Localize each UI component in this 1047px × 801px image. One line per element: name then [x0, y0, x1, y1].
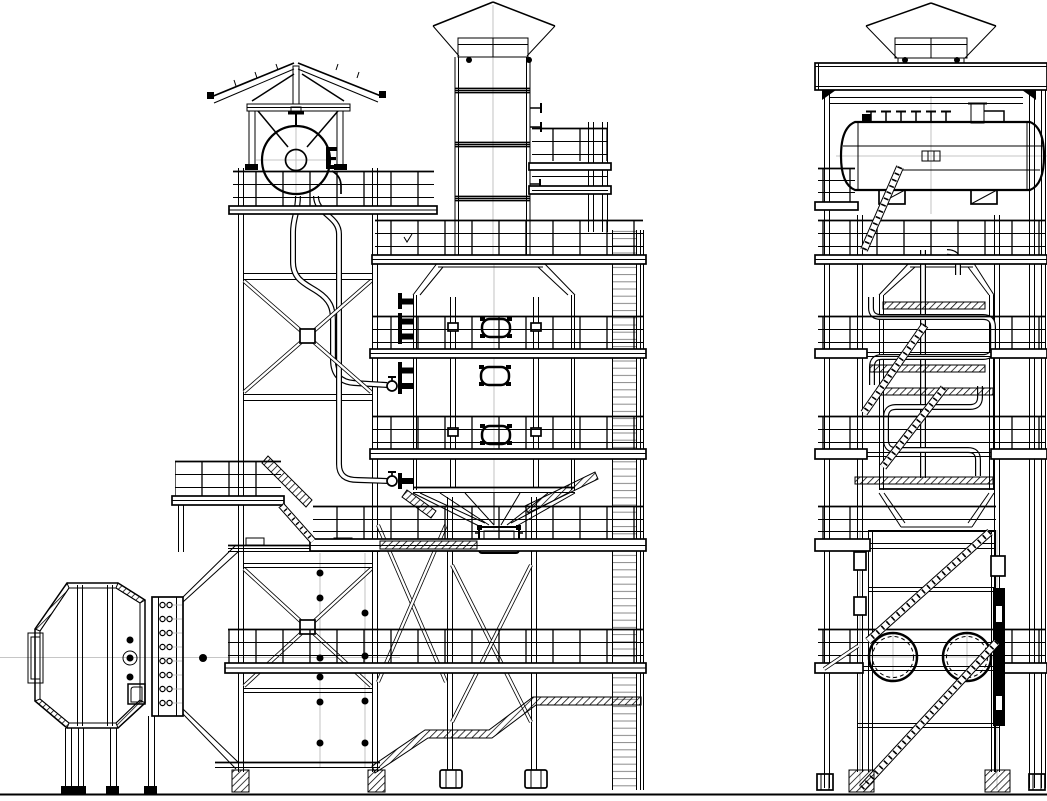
roof-posts — [830, 98, 1023, 104]
front-elevation — [28, 2, 646, 794]
base-plate — [368, 770, 385, 792]
stack-flange-joint — [455, 197, 530, 201]
side-band-3 — [815, 416, 1047, 459]
side-band-4 — [815, 506, 996, 551]
stack-flange-joint — [455, 89, 530, 93]
stack-platform — [529, 122, 611, 232]
platform-band-5 — [225, 629, 646, 673]
side-band-2 — [815, 316, 1047, 358]
valve-nozzle — [387, 377, 413, 394]
side-band-1 — [815, 220, 1047, 264]
base-plate — [525, 770, 547, 788]
platform-band-1 — [372, 220, 646, 264]
ga-drawing — [0, 0, 1047, 801]
mini-platform — [172, 461, 284, 552]
platform-band-3 — [370, 416, 646, 459]
roof-slab — [815, 63, 1047, 100]
mini-stair — [281, 505, 313, 541]
drum-platform — [229, 171, 437, 214]
drawing-page — [0, 0, 1047, 801]
stack-flange-joint — [455, 143, 530, 147]
side-elevation — [815, 3, 1047, 792]
stack-cap-side — [866, 3, 996, 63]
platform-band-4 — [310, 506, 646, 551]
drum-top-stub — [288, 107, 304, 126]
octagon-access-door — [128, 684, 145, 704]
manhole — [479, 365, 511, 386]
octagon-duct-end — [28, 583, 207, 794]
drum-side-platform — [815, 168, 858, 210]
platform-band-2 — [370, 316, 646, 358]
column-bases-side — [817, 770, 1045, 792]
stack-rain-cap — [433, 2, 555, 63]
steam-drum-side — [841, 104, 1044, 205]
valve-nozzle — [387, 472, 413, 489]
bolted-ring-flange — [152, 597, 183, 716]
base-plate — [232, 770, 249, 792]
drum-saddles — [879, 190, 997, 204]
base-plate — [440, 770, 462, 788]
drum-top-nozzles — [862, 104, 1004, 124]
